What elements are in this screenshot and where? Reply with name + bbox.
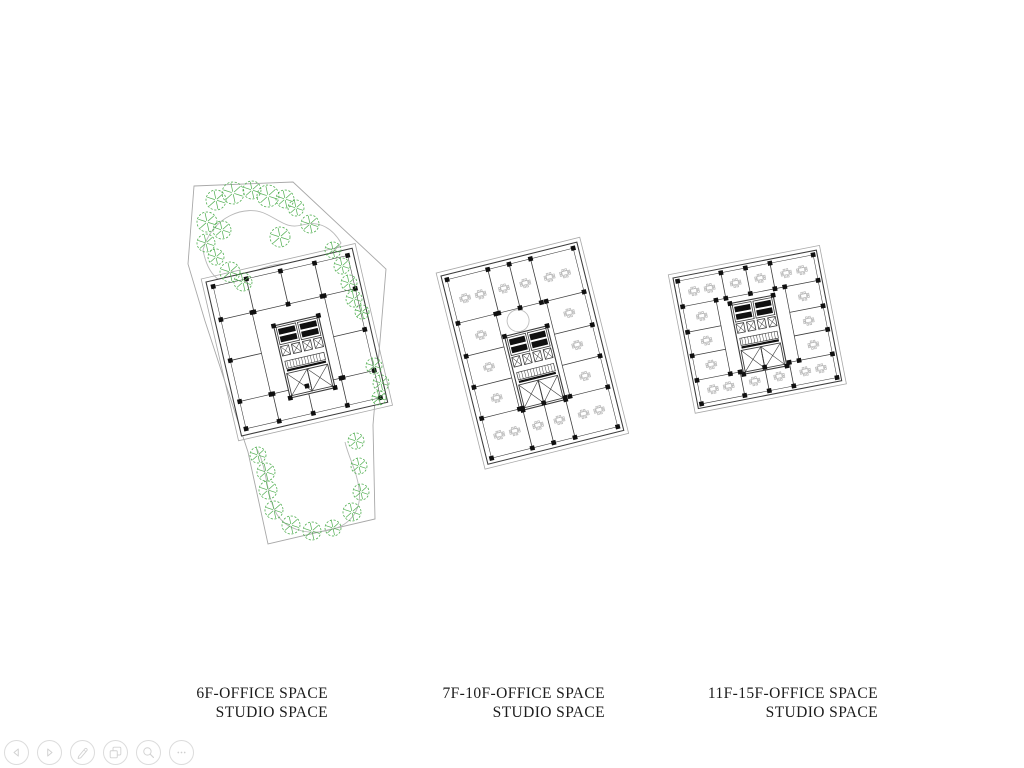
slide-panel-button[interactable] (103, 740, 128, 765)
magnifier-icon (140, 744, 157, 761)
plan-label-7f-10f: 7F-10F-OFFICE SPACE STUDIO SPACE (442, 685, 605, 722)
presenter-toolbar (4, 740, 194, 765)
plan-subtitle: STUDIO SPACE (442, 704, 605, 723)
floor-plan-11f-15f (668, 245, 846, 413)
chevron-left-icon (8, 744, 25, 761)
plan-title: 6F-OFFICE SPACE (196, 685, 328, 704)
pen-tool-button[interactable] (70, 740, 95, 765)
floor-plans-drawing (0, 0, 1024, 768)
floor-plan-7f-10f (436, 237, 628, 469)
more-options-button[interactable] (169, 740, 194, 765)
presentation-slide: 6F-OFFICE SPACE STUDIO SPACE 7F-10F-OFFI… (0, 0, 1024, 768)
plan-label-11f-15f: 11F-15F-OFFICE SPACE STUDIO SPACE (708, 685, 878, 722)
pen-icon (74, 744, 91, 761)
ellipsis-icon (173, 744, 190, 761)
previous-slide-button[interactable] (4, 740, 29, 765)
next-slide-button[interactable] (37, 740, 62, 765)
plan-title: 7F-10F-OFFICE SPACE (442, 685, 605, 704)
plan-label-6f: 6F-OFFICE SPACE STUDIO SPACE (196, 685, 328, 722)
plan-subtitle: STUDIO SPACE (708, 704, 878, 723)
slides-icon (107, 744, 124, 761)
magnifier-button[interactable] (136, 740, 161, 765)
plan-title: 11F-15F-OFFICE SPACE (708, 685, 878, 704)
chevron-right-icon (41, 744, 58, 761)
plan-subtitle: STUDIO SPACE (196, 704, 328, 723)
